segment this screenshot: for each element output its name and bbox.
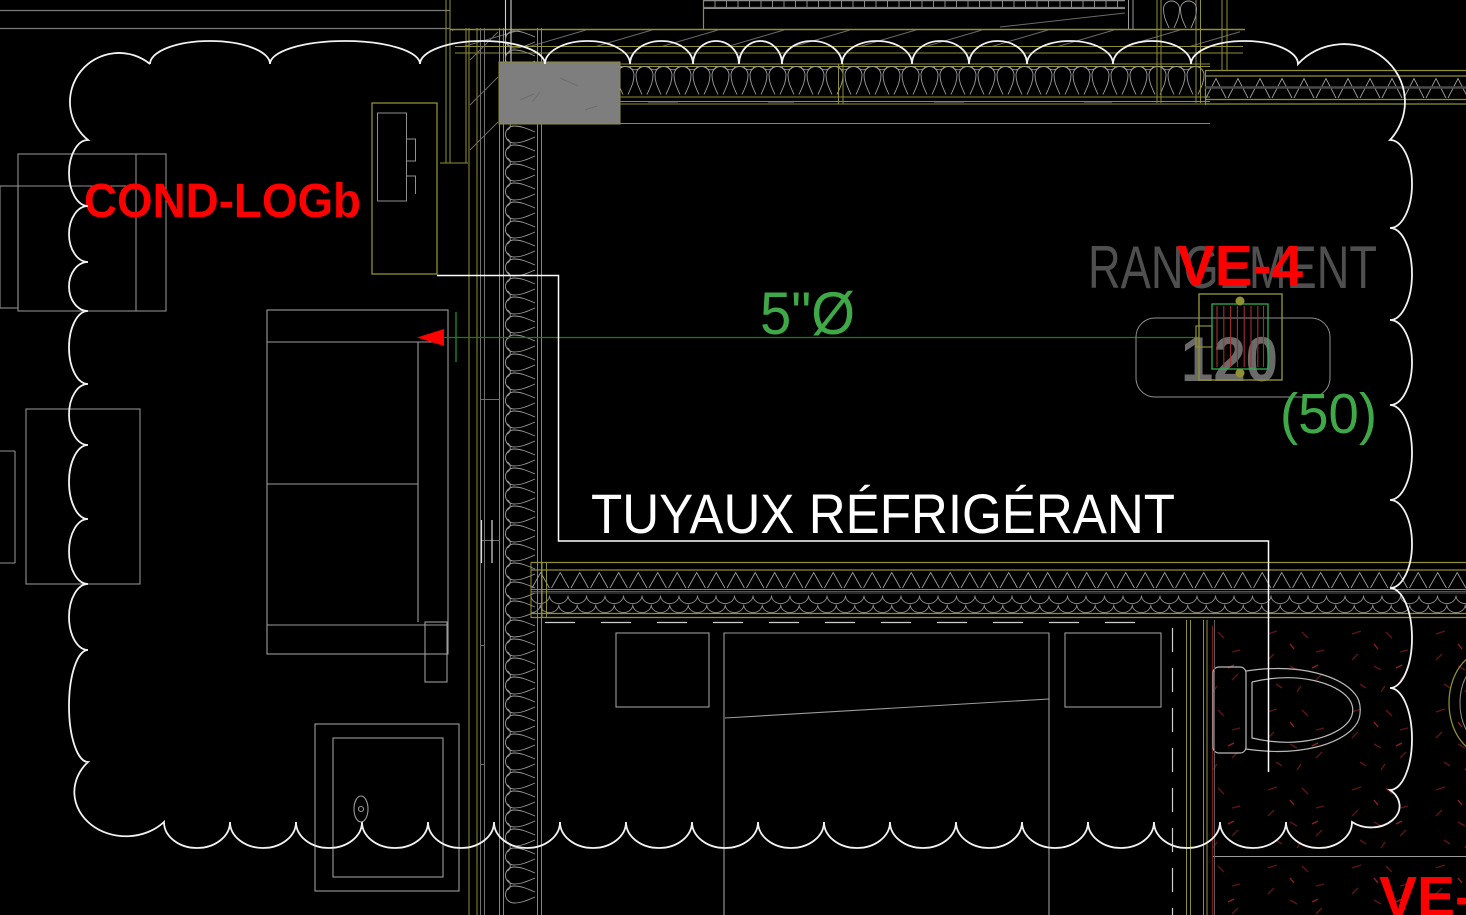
svg-text:(50): (50) <box>1280 382 1377 446</box>
svg-text:VE-4: VE-4 <box>1177 234 1303 298</box>
svg-text:TUYAUX RÉFRIGÉRANT: TUYAUX RÉFRIGÉRANT <box>591 482 1175 545</box>
svg-text:COND-LOGb: COND-LOGb <box>84 175 361 228</box>
svg-text:VE-4: VE-4 <box>1379 865 1466 915</box>
svg-text:5"Ø: 5"Ø <box>760 280 855 347</box>
